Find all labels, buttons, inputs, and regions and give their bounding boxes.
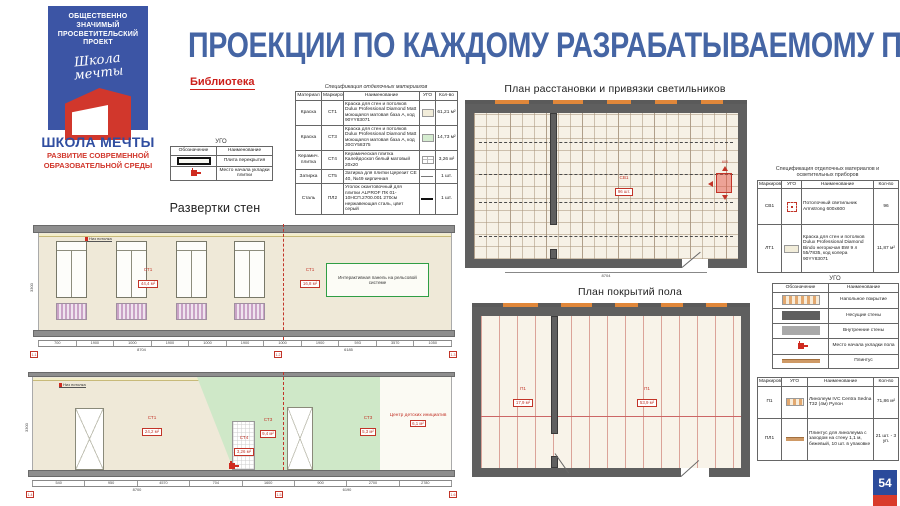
lights-spec-table: Спецификация отделочных материалов и осв… [757, 166, 898, 273]
section-divider-line [283, 224, 284, 340]
table-row: ЛТ1 Краска для стен и потолков Dulux Pro… [758, 225, 899, 273]
cell-name: Несущие стены [829, 308, 899, 323]
finish-label-st4: СТ4 3,26 м² [231, 435, 257, 458]
tile-start-icon [191, 170, 197, 176]
cell-mark: ПЛ1 [758, 418, 782, 460]
floor-spec-table: Маркировка УГО Наименование Кол-во П1 Ли… [757, 377, 898, 461]
table-row: Краска СТ3 Краска для стен и потолков Du… [296, 125, 458, 150]
arrow-down-icon [722, 195, 728, 200]
table-header-row: Обозначение Наименование [773, 284, 899, 293]
cell-mark: СТ1 [322, 100, 344, 125]
page-number-badge: 54 [873, 470, 897, 495]
center-initiatives-note: Центр детских инициатив 6,1 м² [385, 413, 451, 428]
plinth-icon [786, 437, 804, 441]
cell-material: Сталь [296, 184, 322, 215]
table-row: Место начала укладки плитки [171, 166, 273, 180]
vertical-dimension: 3300 [24, 423, 29, 432]
grout-line-icon [421, 176, 433, 177]
cell-mark: СВ1 [758, 189, 782, 225]
slide: ОБЩЕСТВЕННО ЗНАЧИМЫЙ ПРОСВЕТИТЕЛЬСКИЙ ПР… [0, 0, 900, 506]
cell-ugo [782, 189, 802, 225]
cell-mark: ПЛ2 [322, 184, 344, 215]
paint-swatch-beige [784, 245, 799, 253]
window [234, 241, 265, 298]
table-row: Место начала укладки пола [773, 338, 899, 354]
cell-mark: ЛТ1 [758, 225, 782, 273]
materials-spec-table: Спецификация отделочных материалов Матер… [295, 84, 457, 215]
ceiling-light-icon [787, 202, 797, 212]
arrow-left-icon [708, 181, 713, 187]
floor-slab [28, 470, 455, 477]
cell-name: Плинтус [829, 354, 899, 368]
page-title: ПРОЕКЦИИ ПО КАЖДОМУ РАЗРАБАТЫВАЕМОМУ ПОМ… [188, 26, 900, 66]
linoleum-icon [786, 398, 804, 406]
cell-symbol [773, 338, 829, 354]
cell-ugo [420, 150, 436, 170]
ceiling-grid-area: 600 СВ1 96 шт. [465, 104, 747, 268]
ceiling-note: Низ потолка [59, 382, 86, 388]
table-row: Внутренние стены [773, 323, 899, 338]
table-row: ПЛ1 Плинтус для линолеума с заходом на с… [758, 418, 899, 460]
plan-dimension: 8704 [505, 272, 707, 278]
plinth-icon [782, 359, 820, 363]
cell-name: Место начала укладки плитки [217, 166, 273, 180]
floor-covering-area: П1 17,9 м² П1 53,9 м² [472, 307, 750, 477]
lighting-row-line [479, 142, 733, 143]
cell-symbol [773, 354, 829, 368]
finish-label-st3: СТ3 9,4 м² [255, 417, 281, 440]
floor-slab [33, 330, 455, 337]
wall-surface: Низ потолка СТ1 44,4 м² СТ1 16,8 м² Инте… [38, 233, 452, 330]
cell-name: Затирка для плитки Церезит CE 40, №49 ки… [344, 170, 420, 184]
table-row: Плинтус [773, 354, 899, 368]
elevations-heading: Развертки стен [140, 201, 290, 215]
cell-material: Керамич. плитка [296, 150, 322, 170]
cell-symbol [773, 323, 829, 338]
floor-covering-icon [782, 295, 820, 305]
cell-symbol [171, 155, 217, 166]
cell-qty: 61,21 м² [436, 100, 458, 125]
cell-name: Плинтус для линолеума с заходом на стену… [808, 418, 874, 460]
col-name: Наименование [217, 147, 273, 156]
cell-qty: 21 шт. - 3 уп. [874, 418, 899, 460]
cell-qty: 96 [874, 189, 899, 225]
radiator [234, 303, 265, 320]
cell-ugo [782, 225, 802, 273]
logo-project-text: ОБЩЕСТВЕННО ЗНАЧИМЫЙ ПРОСВЕТИТЕЛЬСКИЙ ПР… [53, 13, 143, 48]
logo-banner: ОБЩЕСТВЕННО ЗНАЧИМЫЙ ПРОСВЕТИТЕЛЬСКИЙ ПР… [48, 6, 148, 130]
partition-wall-stub [550, 249, 557, 259]
lighting-row-line [479, 236, 733, 237]
radiator [116, 303, 147, 320]
cell-symbol [773, 292, 829, 308]
cell-mark: П1 [758, 386, 782, 418]
table-row: Сталь ПЛ2 Уголок окантовочный для плитки… [296, 184, 458, 215]
cell-qty: 71,86 м² [874, 386, 899, 418]
floor-plan: П1 17,9 м² П1 53,9 м² [472, 303, 750, 477]
cell-qty: 1 шт. [436, 184, 458, 215]
cell-ugo [420, 125, 436, 150]
cell-qty: 3,26 м² [436, 150, 458, 170]
cell-ugo [420, 184, 436, 215]
floor-start-icon [798, 343, 804, 349]
arrow-up-icon [722, 166, 728, 171]
axis-marker: 1.4 [26, 491, 34, 498]
cell-mark: СТ4 [322, 150, 344, 170]
steel-edge-icon [421, 198, 433, 201]
cell-material: Затирка [296, 170, 322, 184]
table-row: П1 Линолеум IVC Centra Sedna T32 (4м) Ру… [758, 386, 899, 418]
wall-elevation-bottom: Низ потолка СТ1 24,2 м² СТ3 9,4 м² СТ4 3… [28, 372, 455, 502]
ceiling-note: Низ потолка [85, 236, 112, 242]
ugo-floor-legend: УГО Обозначение Наименование Напольное п… [772, 276, 898, 369]
axis-marker: 1.6 [449, 491, 457, 498]
axis-marker: 1.5 [275, 491, 283, 498]
cell-mark: СТ3 [322, 125, 344, 150]
logo-tagline: РАЗВИТИЕ СОВРЕМЕННОЙ ОБРАЗОВАТЕЛЬНОЙ СРЕ… [36, 151, 160, 171]
axis-marker: 1.3 [449, 351, 457, 358]
cell-name: Уголок окантовочный для плитки ALPROF ПК… [344, 184, 420, 215]
cell-qty: 1 шт. [436, 170, 458, 184]
ugo-title: УГО [772, 276, 898, 282]
cell-name: Внутренние стены [829, 323, 899, 338]
interior-wall-icon [782, 326, 820, 335]
floor-label-right: П1 53,9 м² [633, 386, 661, 409]
materials-spec-title: Спецификация отделочных материалов [295, 84, 457, 90]
tile-start-icon [229, 463, 235, 469]
table-row: Несущие стены [773, 308, 899, 323]
floor-plan-title: План покрытий пола [530, 286, 730, 298]
axis-marker: 1.1 [30, 351, 38, 358]
cell-name: Плита перекрытия [217, 155, 273, 166]
finish-label-st1: СТ1 24,2 м² [139, 415, 165, 438]
table-row: Затирка СТ5 Затирка для плитки Церезит C… [296, 170, 458, 184]
highlighted-light-fixture: 600 [716, 173, 732, 193]
lighting-row-line [479, 174, 733, 175]
section-divider-line [283, 372, 284, 475]
cell-material: Краска [296, 100, 322, 125]
cell-qty: 11,87 м² [874, 225, 899, 273]
cell-qty: 14,73 м² [436, 125, 458, 150]
table-header-row: Маркировка УГО Наименование Кол-во [758, 180, 899, 189]
door [75, 408, 104, 470]
table-row: Напольное покрытие [773, 292, 899, 308]
finish-label-st1: СТ1 44,4 м² [135, 267, 161, 290]
cell-symbol [171, 166, 217, 180]
floor-label-left: П1 17,9 м² [509, 386, 537, 409]
col-qty: Кол-во [436, 92, 458, 101]
lights-spec-title: Спецификация отделочных материалов и осв… [757, 166, 898, 179]
paint-swatch-green [422, 134, 434, 142]
room-name-label: Библиотека [190, 76, 255, 90]
cell-name: Линолеум IVC Centra Sedna T32 (4м) Рулон [808, 386, 874, 418]
tile-swatch-icon [422, 156, 434, 164]
col-mark: Маркировка [322, 92, 344, 101]
bearing-wall-icon [782, 311, 820, 320]
col-ugo: УГО [420, 92, 436, 101]
table-header-row: Маркировка УГО Наименование Кол-во [758, 378, 899, 387]
fixture-label: СВ1 96 шт. [610, 175, 638, 198]
wall-surface: Низ потолка СТ1 24,2 м² СТ3 9,4 м² СТ4 3… [32, 377, 452, 470]
paint-swatch-beige [422, 109, 434, 117]
dimension-total-row: 8700 6190 [32, 486, 452, 492]
lighting-row-line [479, 202, 733, 203]
partition-wall [551, 316, 558, 434]
cell-material: Краска [296, 125, 322, 150]
radiator [176, 303, 207, 320]
axis-marker: 1.2 [274, 351, 282, 358]
dimension-total-row: 8704 6185 [38, 346, 452, 352]
logo-script-text: Школа мечты [52, 49, 144, 84]
cell-ugo [782, 386, 808, 418]
table-row: Краска СТ1 Краска для стен и потолков Du… [296, 100, 458, 125]
table-header-row: Обозначение Наименование [171, 147, 273, 156]
col-symbol: Обозначение [171, 147, 217, 156]
window [56, 241, 87, 298]
cell-ugo [782, 418, 808, 460]
col-name: Наименование [344, 92, 420, 101]
cell-symbol [773, 308, 829, 323]
cell-name: Потолочный светильник Armstrong 600x600 [802, 189, 874, 225]
cell-name: Краска для стен и потолков Dulux Profess… [344, 125, 420, 150]
ceiling-plan-title: План расстановки и привязки светильников [495, 83, 735, 95]
ceiling-plan: 600 СВ1 96 шт. 8704 [465, 100, 747, 268]
table-row: Керамич. плитка СТ4 Керамическая плитка … [296, 150, 458, 170]
cell-name: Место начала укладки пола [829, 338, 899, 354]
logo-name: ШКОЛА МЕЧТЫ [36, 134, 160, 150]
window [176, 241, 207, 298]
fixture-dimension: 600 [717, 160, 733, 164]
page-badge-accent [873, 495, 897, 506]
ugo-title: УГО [170, 139, 272, 145]
seam-line [481, 416, 741, 417]
school-building-icon [65, 88, 131, 140]
cell-name: Краска для стен и потолков Dulux Profess… [802, 225, 874, 273]
table-row: СВ1 Потолочный светильник Armstrong 600x… [758, 189, 899, 225]
finish-label-st3b: СТ3 5,3 м² [355, 415, 381, 438]
cell-name: Керамическая плитка Калейдоскоп белый ма… [344, 150, 420, 170]
cell-name: Краска для стен и потолков Dulux Profess… [344, 100, 420, 125]
partition-wall [550, 113, 557, 225]
cell-mark: СТ5 [322, 170, 344, 184]
cell-ugo [420, 100, 436, 125]
ceiling-slab [33, 225, 455, 233]
door [287, 407, 313, 470]
slab-icon [177, 157, 211, 165]
cell-name: Напольное покрытие [829, 292, 899, 308]
ugo-wall-legend: УГО Обозначение Наименование Плита перек… [170, 139, 272, 181]
table-header-row: Материал Маркировка Наименование УГО Кол… [296, 92, 458, 101]
finish-label-st1b: СТ1 16,8 м² [297, 267, 323, 290]
wall-elevation-top: Низ потолка СТ1 44,4 м² СТ1 16,8 м² Инте… [33, 222, 455, 358]
table-row: Плита перекрытия [171, 155, 273, 166]
col-material: Материал [296, 92, 322, 101]
interactive-panel-note: Интерактивная панель на рельсовой систем… [326, 263, 429, 297]
radiator [56, 303, 87, 320]
vertical-dimension: 3300 [29, 283, 34, 292]
cell-ugo [420, 170, 436, 184]
